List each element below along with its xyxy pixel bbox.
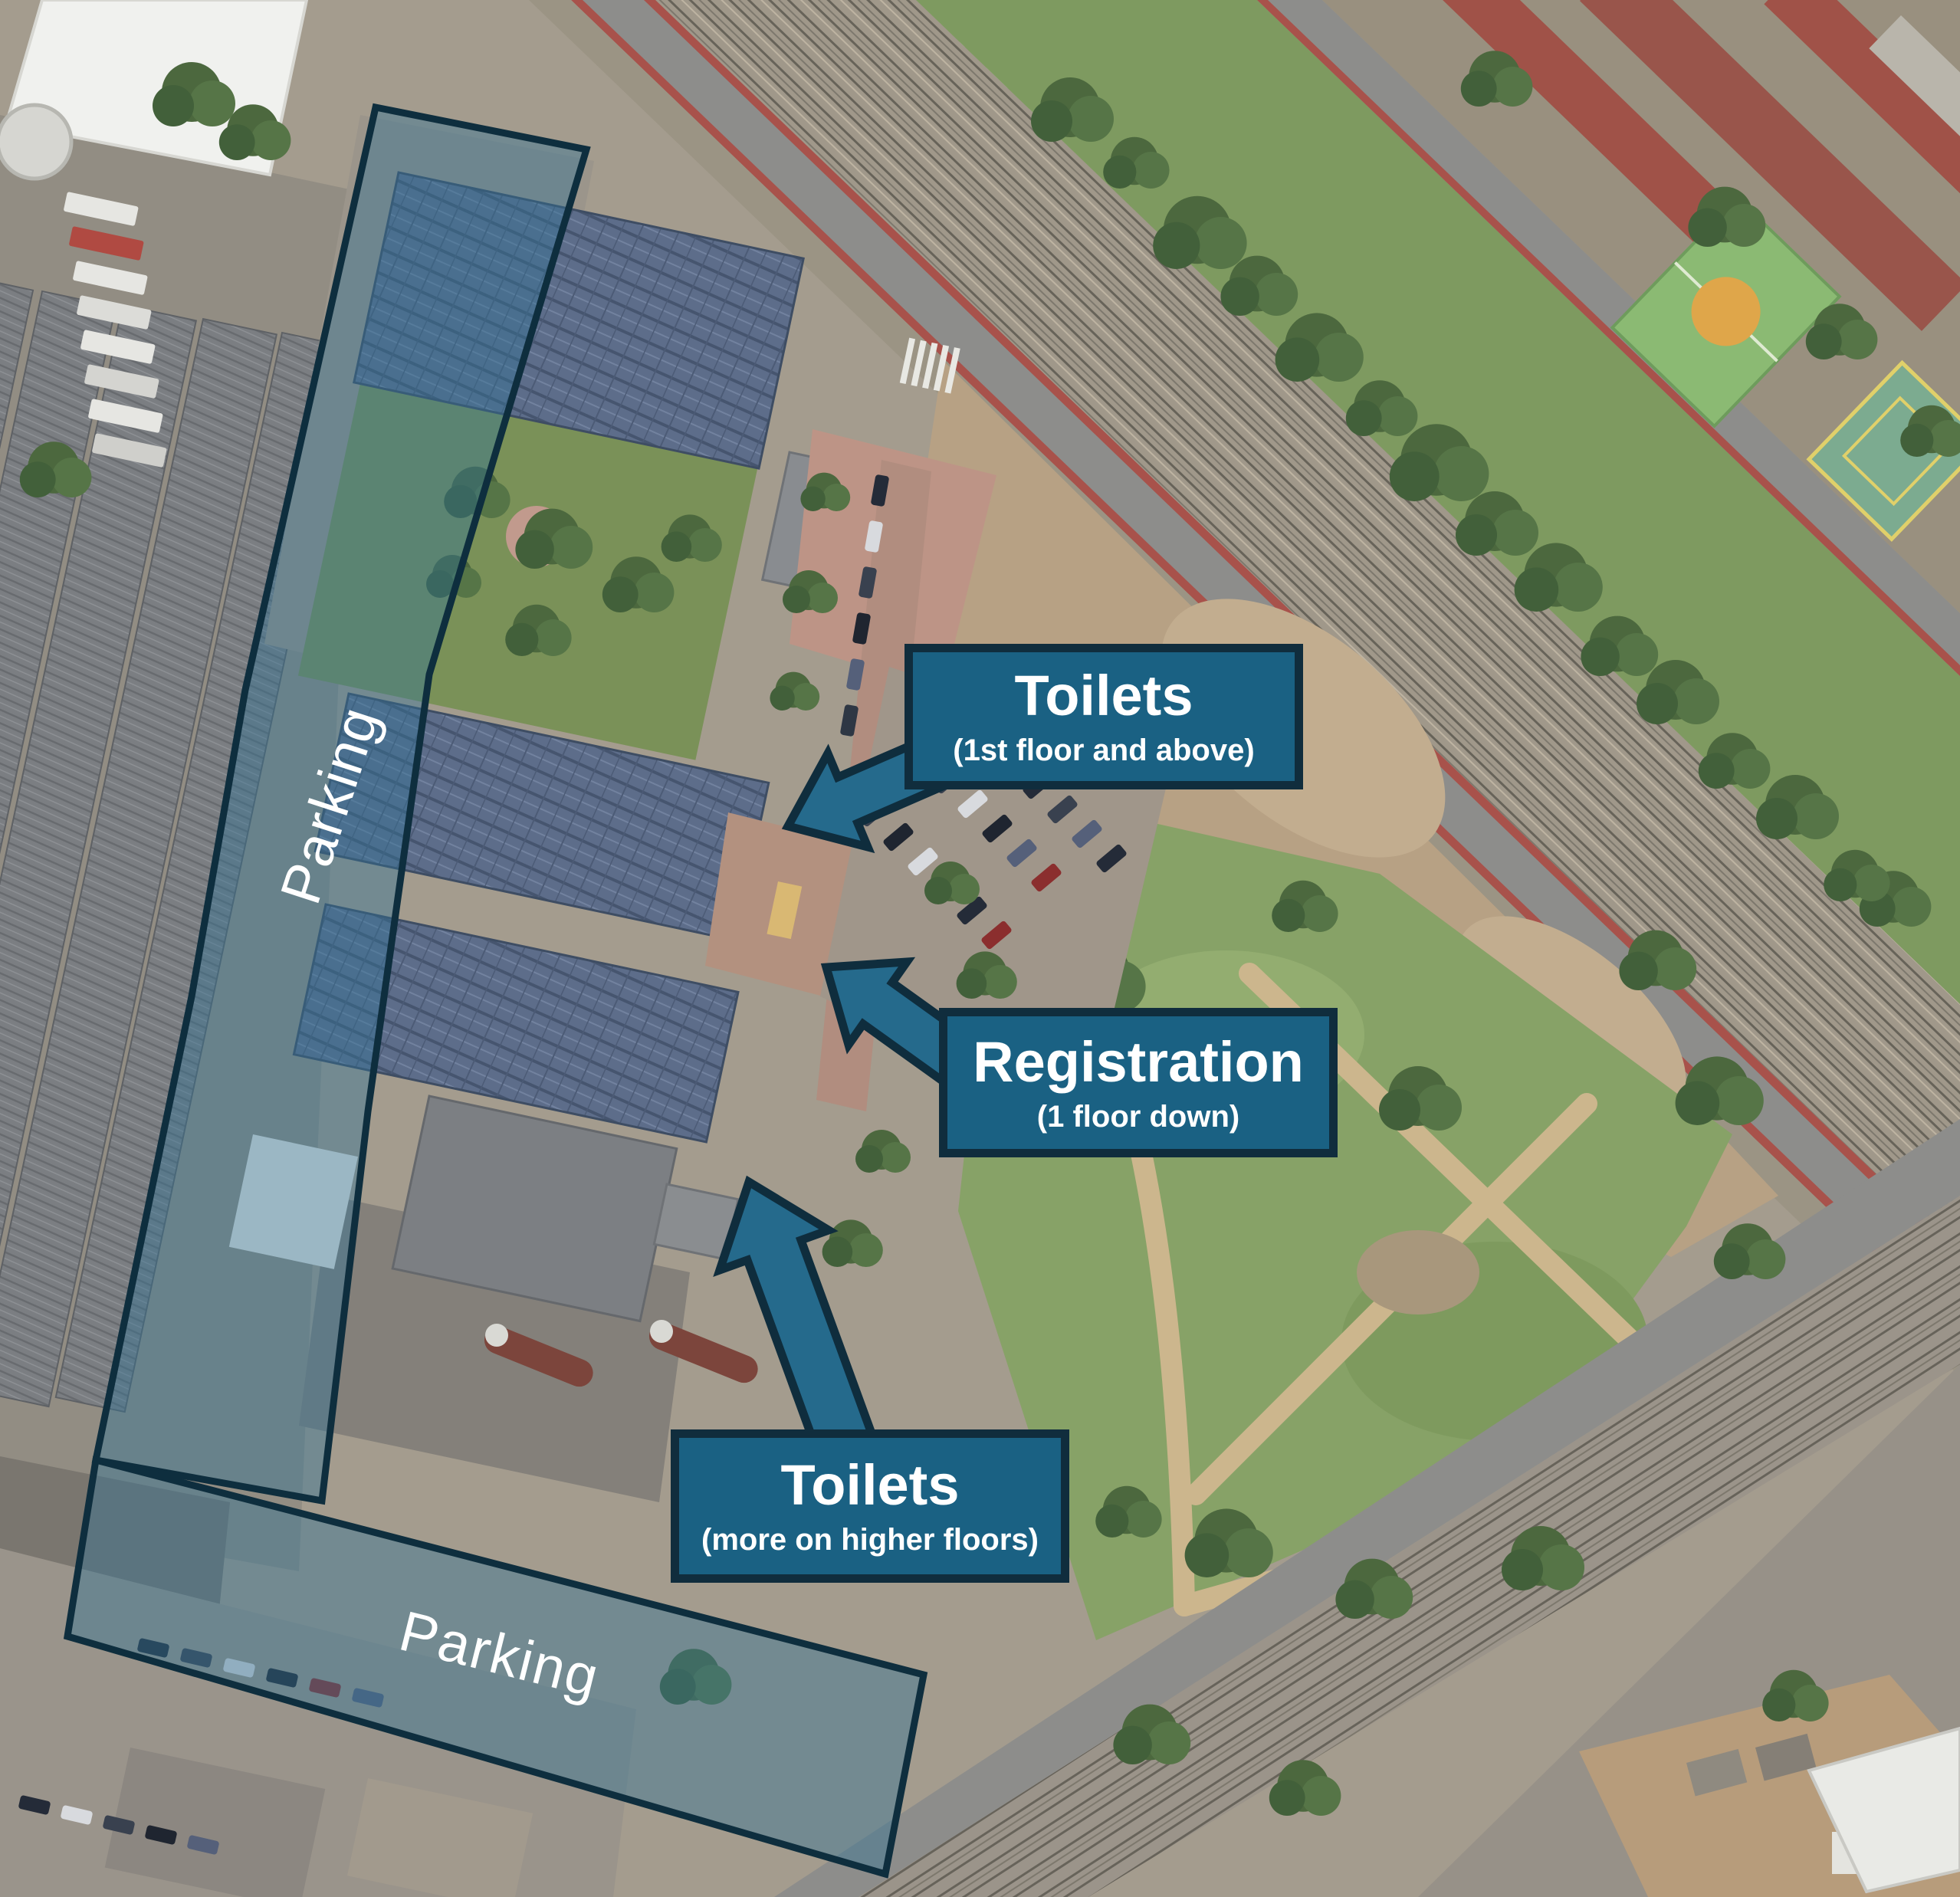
callout-toilets-upper: Toilets (1st floor and above) [904,644,1303,789]
callout-subtitle: (more on higher floors) [701,1524,1039,1555]
storage-tank [0,105,71,179]
annotated-satellite-map: Parking Parking Toilets (1st floor and a… [0,0,1960,1897]
satellite-basemap [0,0,1960,1897]
callout-subtitle: (1 floor down) [1037,1101,1239,1132]
callout-title: Registration [973,1034,1304,1091]
callout-registration: Registration (1 floor down) [939,1008,1338,1157]
callout-title: Toilets [1015,668,1193,724]
callout-toilets-lower: Toilets (more on higher floors) [671,1429,1069,1583]
callout-subtitle: (1st floor and above) [953,735,1254,766]
callout-title: Toilets [781,1457,960,1514]
